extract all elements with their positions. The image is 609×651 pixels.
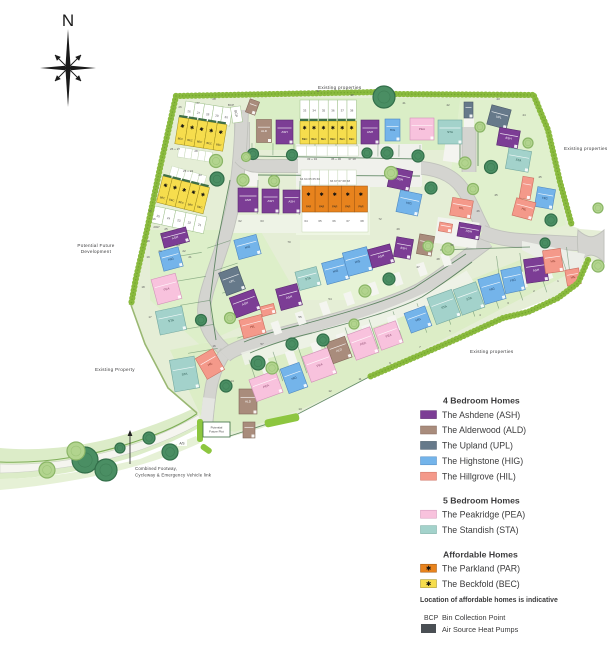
svg-text:55: 55 bbox=[298, 315, 302, 319]
svg-text:✱: ✱ bbox=[333, 192, 337, 198]
svg-text:✱: ✱ bbox=[346, 192, 350, 198]
svg-text:15: 15 bbox=[148, 209, 152, 213]
svg-text:Existing properties: Existing properties bbox=[470, 349, 514, 354]
svg-text:41: 41 bbox=[402, 101, 406, 105]
svg-text:The Standish (STA): The Standish (STA) bbox=[442, 525, 519, 535]
svg-text:PAR: PAR bbox=[332, 204, 337, 208]
svg-text:17: 17 bbox=[156, 225, 160, 229]
svg-text:39: 39 bbox=[350, 93, 354, 97]
svg-text:BEC: BEC bbox=[330, 137, 335, 141]
svg-text:ALD: ALD bbox=[245, 400, 252, 404]
svg-text:Existing properties: Existing properties bbox=[564, 146, 608, 151]
svg-text:26 + 27: 26 + 27 bbox=[170, 147, 180, 151]
svg-text:45: 45 bbox=[494, 193, 498, 197]
svg-text:ASH: ASH bbox=[288, 200, 294, 204]
svg-text:Air Source Heat Pumps: Air Source Heat Pumps bbox=[442, 625, 519, 634]
svg-text:✱: ✱ bbox=[208, 128, 213, 135]
svg-text:BCP: BCP bbox=[424, 615, 439, 622]
svg-text:A/S: A/S bbox=[179, 442, 184, 446]
svg-text:BEC: BEC bbox=[206, 141, 212, 146]
svg-text:33: 33 bbox=[303, 108, 307, 112]
svg-text:50: 50 bbox=[450, 243, 454, 247]
svg-text:PEA: PEA bbox=[419, 127, 426, 131]
svg-text:35: 35 bbox=[322, 108, 326, 112]
svg-text:35 + 36: 35 + 36 bbox=[331, 157, 341, 161]
svg-text:65: 65 bbox=[318, 219, 322, 223]
svg-text:66 67 67 68 68: 66 67 67 68 68 bbox=[330, 179, 350, 183]
svg-text:46: 46 bbox=[476, 209, 480, 213]
svg-text:BCP: BCP bbox=[228, 103, 234, 107]
svg-text:62: 62 bbox=[238, 219, 242, 223]
svg-text:✱: ✱ bbox=[340, 126, 344, 132]
svg-text:PAR: PAR bbox=[358, 204, 363, 208]
svg-text:18: 18 bbox=[141, 285, 145, 289]
svg-text:26: 26 bbox=[178, 105, 182, 109]
svg-text:HIG: HIG bbox=[390, 128, 396, 132]
svg-text:44: 44 bbox=[522, 113, 526, 117]
svg-text:23: 23 bbox=[198, 173, 202, 177]
svg-text:BEC: BEC bbox=[216, 142, 222, 147]
svg-text:Cycleway & Emergency Vehicle l: Cycleway & Emergency Vehicle link bbox=[135, 473, 212, 478]
svg-text:BEC: BEC bbox=[197, 139, 203, 144]
svg-text:The Beckfold (BEC): The Beckfold (BEC) bbox=[442, 579, 520, 589]
svg-text:The Parkland (PAR): The Parkland (PAR) bbox=[442, 563, 520, 573]
svg-text:72: 72 bbox=[378, 217, 382, 221]
svg-text:12: 12 bbox=[328, 389, 332, 393]
svg-text:28: 28 bbox=[194, 149, 198, 153]
svg-text:43: 43 bbox=[496, 97, 500, 101]
svg-text:PAR: PAR bbox=[345, 204, 350, 208]
svg-text:The Upland (UPL): The Upland (UPL) bbox=[442, 441, 513, 451]
svg-text:33 + 34: 33 + 34 bbox=[307, 157, 317, 161]
svg-text:48: 48 bbox=[436, 257, 440, 261]
svg-text:✱: ✱ bbox=[426, 581, 431, 588]
svg-text:68: 68 bbox=[360, 219, 364, 223]
svg-text:BEC: BEC bbox=[187, 138, 193, 143]
svg-text:64 64 65 65 66: 64 64 65 65 66 bbox=[300, 177, 320, 181]
svg-text:✱: ✱ bbox=[303, 126, 307, 132]
svg-text:13: 13 bbox=[298, 407, 302, 411]
svg-text:The Ashdene (ASH): The Ashdene (ASH) bbox=[442, 410, 520, 420]
svg-text:Existing properties: Existing properties bbox=[318, 85, 362, 90]
svg-text:4 Bedroom Homes: 4 Bedroom Homes bbox=[443, 396, 520, 406]
svg-text:Affordable Homes: Affordable Homes bbox=[443, 550, 518, 560]
svg-text:66: 66 bbox=[332, 219, 336, 223]
svg-text:N: N bbox=[62, 11, 74, 30]
svg-text:21: 21 bbox=[188, 255, 192, 259]
svg-text:BEC: BEC bbox=[302, 137, 307, 141]
svg-text:Location of affordable homes i: Location of affordable homes is indicati… bbox=[420, 597, 558, 604]
svg-text:47: 47 bbox=[416, 265, 420, 269]
svg-text:The Hillgrove (HIL): The Hillgrove (HIL) bbox=[442, 471, 516, 481]
svg-text:BEC: BEC bbox=[311, 137, 316, 141]
svg-text:14: 14 bbox=[230, 379, 234, 383]
svg-text:ASH: ASH bbox=[267, 199, 273, 203]
svg-text:✱: ✱ bbox=[350, 126, 354, 132]
svg-text:27: 27 bbox=[196, 101, 200, 105]
svg-text:✱: ✱ bbox=[321, 126, 325, 132]
svg-text:✱: ✱ bbox=[218, 130, 223, 137]
svg-text:Combined Footway,: Combined Footway, bbox=[135, 466, 177, 471]
svg-text:Existing Property: Existing Property bbox=[95, 367, 135, 372]
svg-text:37 38: 37 38 bbox=[348, 157, 356, 161]
svg-text:25: 25 bbox=[164, 227, 168, 231]
svg-text:Potential Future: Potential Future bbox=[77, 243, 114, 248]
svg-text:Bin Collection Point: Bin Collection Point bbox=[442, 613, 505, 622]
svg-text:ALD: ALD bbox=[261, 129, 268, 133]
svg-text:ASH: ASH bbox=[367, 130, 373, 134]
svg-text:20: 20 bbox=[158, 249, 162, 253]
svg-text:11: 11 bbox=[358, 377, 361, 381]
svg-text:BEC: BEC bbox=[321, 137, 326, 141]
svg-text:34: 34 bbox=[312, 108, 316, 112]
svg-text:HIL: HIL bbox=[550, 259, 556, 264]
svg-text:64: 64 bbox=[304, 219, 308, 223]
svg-text:✱: ✱ bbox=[319, 192, 323, 198]
svg-text:✱: ✱ bbox=[199, 127, 204, 134]
svg-text:45: 45 bbox=[538, 175, 542, 179]
svg-text:The Peakridge (PEA): The Peakridge (PEA) bbox=[442, 509, 525, 519]
svg-text:37: 37 bbox=[341, 108, 345, 112]
svg-text:70: 70 bbox=[287, 240, 291, 244]
svg-text:5 Bedroom Homes: 5 Bedroom Homes bbox=[443, 496, 520, 506]
svg-text:PAR: PAR bbox=[306, 204, 311, 208]
svg-text:Future Plot: Future Plot bbox=[209, 430, 224, 434]
svg-text:✱: ✱ bbox=[359, 192, 363, 198]
svg-text:67: 67 bbox=[346, 219, 350, 223]
svg-text:16: 16 bbox=[152, 217, 156, 221]
svg-text:Development: Development bbox=[81, 249, 112, 254]
svg-text:54: 54 bbox=[328, 297, 332, 301]
svg-text:63: 63 bbox=[260, 219, 264, 223]
svg-text:STA: STA bbox=[447, 130, 454, 134]
svg-text:✱: ✱ bbox=[312, 126, 316, 132]
svg-text:24: 24 bbox=[170, 235, 174, 239]
svg-text:The Alderwood (ALD): The Alderwood (ALD) bbox=[442, 425, 526, 435]
svg-text:38: 38 bbox=[350, 108, 354, 112]
svg-text:✱: ✱ bbox=[331, 126, 335, 132]
svg-text:✱: ✱ bbox=[189, 125, 194, 132]
svg-text:18: 18 bbox=[160, 233, 164, 237]
svg-text:BEC: BEC bbox=[349, 137, 354, 141]
svg-text:BEC: BEC bbox=[340, 137, 345, 141]
svg-text:57: 57 bbox=[260, 342, 264, 346]
svg-text:✱: ✱ bbox=[426, 566, 431, 573]
svg-text:✱: ✱ bbox=[180, 124, 185, 131]
svg-text:25 + 24: 25 + 24 bbox=[183, 169, 193, 173]
svg-text:16: 16 bbox=[212, 344, 216, 348]
svg-text:19: 19 bbox=[146, 239, 150, 243]
svg-text:22: 22 bbox=[182, 249, 186, 253]
svg-text:19: 19 bbox=[146, 255, 150, 259]
svg-text:PAR: PAR bbox=[319, 204, 324, 208]
svg-text:28: 28 bbox=[212, 97, 216, 101]
svg-text:31: 31 bbox=[316, 89, 320, 93]
svg-text:36: 36 bbox=[331, 108, 335, 112]
svg-text:17: 17 bbox=[148, 315, 152, 319]
svg-text:23: 23 bbox=[176, 243, 180, 247]
svg-text:BEC: BEC bbox=[178, 136, 184, 141]
svg-text:✱: ✱ bbox=[306, 192, 310, 198]
svg-text:The Highstone (HIG): The Highstone (HIG) bbox=[442, 456, 523, 466]
svg-text:ASH: ASH bbox=[245, 198, 251, 202]
svg-text:49: 49 bbox=[396, 227, 400, 231]
svg-text:ASH: ASH bbox=[281, 130, 287, 134]
svg-text:42: 42 bbox=[446, 103, 450, 107]
